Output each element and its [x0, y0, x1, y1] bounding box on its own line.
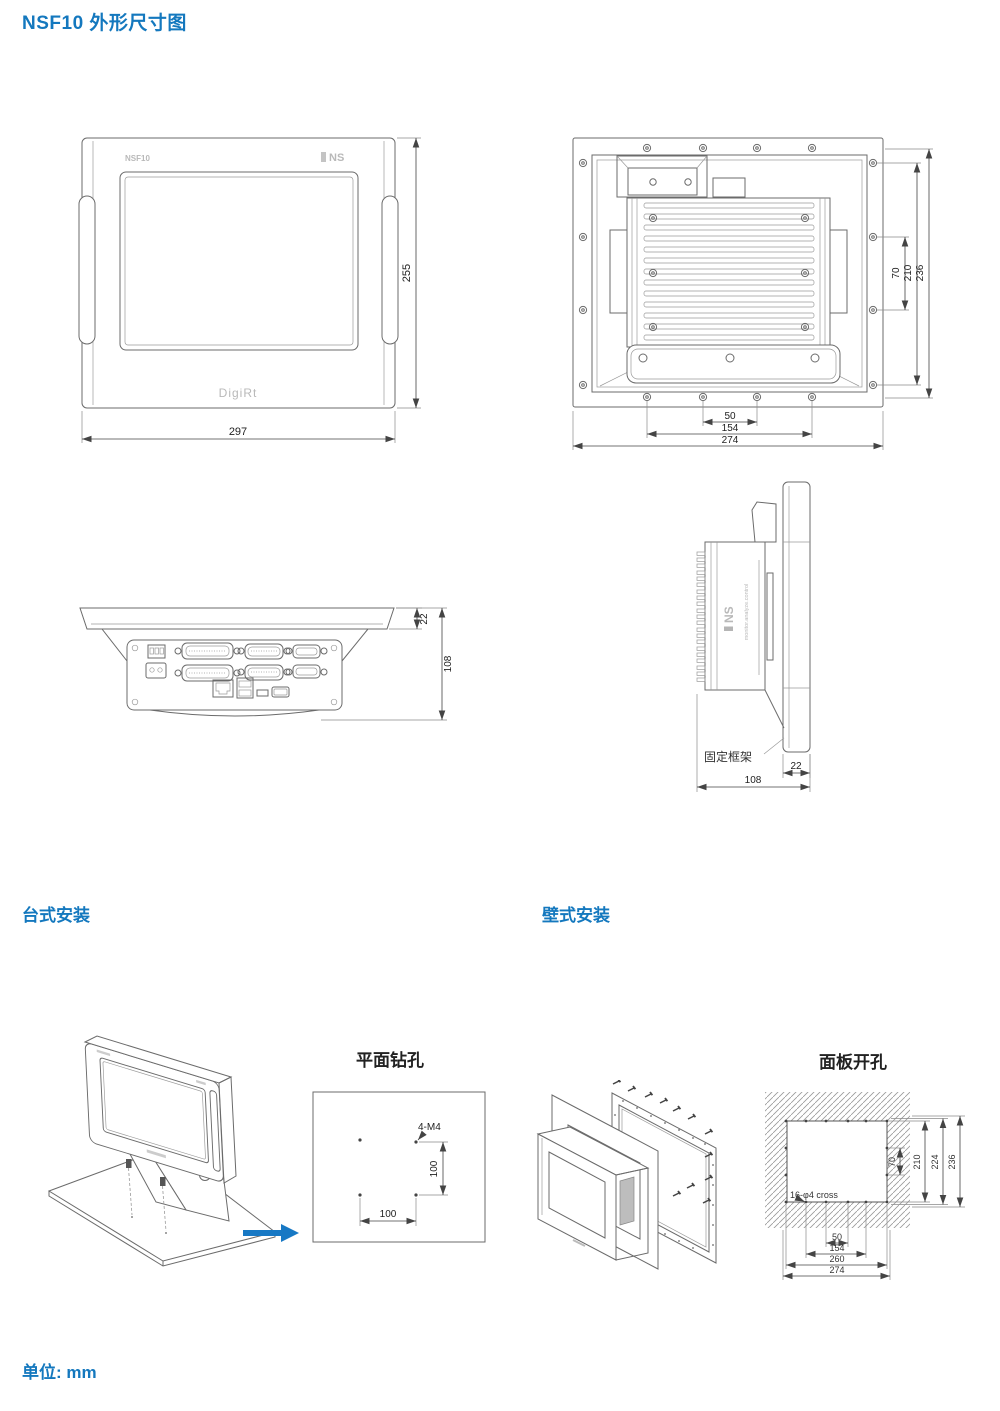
- right-side-tab: [830, 230, 847, 313]
- bottom-view-drawing: 22 108: [50, 595, 490, 740]
- dim-50-label: 50: [724, 411, 736, 422]
- wordmark-label: DigiRt: [219, 386, 258, 400]
- dim-v-100: 100: [419, 1142, 448, 1195]
- plate-outline: [313, 1092, 485, 1242]
- db25-port-bottom: [175, 665, 240, 681]
- fixing-frame-label: 固定框架: [704, 749, 752, 764]
- top-tab: [713, 178, 745, 197]
- db25-port-top: [175, 643, 240, 659]
- dim-236-label: 236: [915, 264, 926, 281]
- ns-logo-text: NS: [329, 152, 344, 164]
- wall-install-drawing: [515, 1080, 755, 1285]
- dim-210-label: 210: [903, 264, 914, 281]
- dim-70-label: 70: [887, 1157, 897, 1167]
- io-ports: [146, 643, 327, 698]
- front-bezel-edge: [80, 608, 394, 629]
- arrow-right-icon: [243, 1222, 305, 1244]
- side-ns-logo: NS: [722, 606, 736, 631]
- db9-port-bottom: [286, 665, 327, 678]
- dim-h-100: 100: [360, 1198, 416, 1226]
- side-view-drawing: NS monitor.analyze.control 固定框架 22 108: [640, 470, 950, 805]
- dim-274-label: 274: [722, 435, 739, 446]
- db15-port-top: [238, 644, 290, 659]
- model-label: NSF10: [125, 154, 150, 163]
- dim-154-label: 154: [722, 423, 739, 434]
- hole-spec-label: 4-M4: [418, 1122, 441, 1133]
- front-view-drawing: NSF10 NS DigiRt 255 297: [60, 130, 440, 460]
- dim-70-label: 70: [891, 267, 902, 279]
- dim-height-255: 255: [397, 138, 421, 408]
- side-bezel: [783, 482, 810, 752]
- wall-install-heading: 壁式安装: [542, 901, 610, 926]
- desktop-install-heading: 台式安装: [22, 901, 90, 926]
- terminal-block-3pin: [148, 645, 165, 658]
- dim-50-label: 50: [832, 1232, 842, 1242]
- hole-spec-callout: 4-M4: [418, 1122, 441, 1140]
- dim-bezel-22: 22: [783, 754, 810, 778]
- drill-pattern-title: 平面钻孔: [330, 1046, 450, 1071]
- dim-depth-108: 108: [321, 608, 454, 720]
- dim-224-label: 224: [930, 1154, 940, 1169]
- dim-236-label: 236: [947, 1154, 957, 1169]
- usb-ports: [237, 678, 253, 698]
- ns-logo: NS: [321, 152, 344, 164]
- front-enclosure: [79, 138, 398, 408]
- panel-cutout-title: 面板开孔: [793, 1048, 913, 1073]
- dim-260-label: 260: [829, 1254, 844, 1264]
- dim-bezel-22: 22: [389, 608, 430, 629]
- side-tagline: monitor.analyze.control: [744, 584, 750, 641]
- desktop-install-drawing: [40, 1025, 320, 1285]
- connector-strip: [767, 573, 773, 660]
- dim-297-label: 297: [229, 426, 247, 438]
- hole-spec-label: 16-φ4 cross: [790, 1190, 838, 1200]
- dim-22-label: 22: [419, 613, 430, 625]
- drill-pattern-drawing: 4-M4 100 100: [300, 1085, 500, 1250]
- heatsink: [610, 198, 847, 347]
- rear-body: [102, 629, 368, 716]
- heatsink-fins: [697, 552, 705, 681]
- top-protrusion: [752, 502, 776, 542]
- rear-view-drawing: 70 210 236 50 154 274: [560, 130, 980, 460]
- ethernet-port: [213, 680, 233, 697]
- small-port: [257, 690, 268, 696]
- hole-spec-callout: 16-φ4 cross: [788, 1189, 848, 1202]
- dim-154-label: 154: [829, 1243, 844, 1253]
- dim-255-label: 255: [401, 264, 413, 282]
- dim-100h-label: 100: [380, 1209, 397, 1220]
- db9-port-top: [286, 645, 327, 658]
- side-ns-logo-text: NS: [722, 606, 736, 623]
- dim-22-label: 22: [790, 761, 802, 772]
- dim-depth-108: 108: [697, 694, 810, 792]
- hdmi-port: [272, 687, 289, 697]
- dim-108-label: 108: [745, 775, 762, 786]
- mounting-bracket: [617, 156, 745, 197]
- dim-108-label: 108: [443, 655, 454, 672]
- page-title: NSF10 外形尺寸图: [22, 8, 187, 35]
- left-grip: [79, 196, 95, 344]
- screen: [125, 177, 353, 345]
- dim-274-label: 274: [829, 1265, 844, 1275]
- left-side-tab: [610, 230, 627, 313]
- dim-width-297: 297: [82, 411, 395, 443]
- power-connector: [146, 663, 166, 678]
- panel-cutout-drawing: 16-φ4 cross 70 210 224 236 50 154: [755, 1085, 990, 1300]
- bottom-bracket: [627, 345, 840, 383]
- drill-holes: [358, 1138, 417, 1196]
- right-grip: [382, 196, 398, 344]
- fixing-frame-callout: 固定框架: [704, 738, 784, 764]
- dim-210-label: 210: [912, 1154, 922, 1169]
- dim-100v-label: 100: [429, 1160, 440, 1177]
- unit-label: 单位: mm: [22, 1358, 97, 1383]
- screen-bezel: [120, 172, 358, 350]
